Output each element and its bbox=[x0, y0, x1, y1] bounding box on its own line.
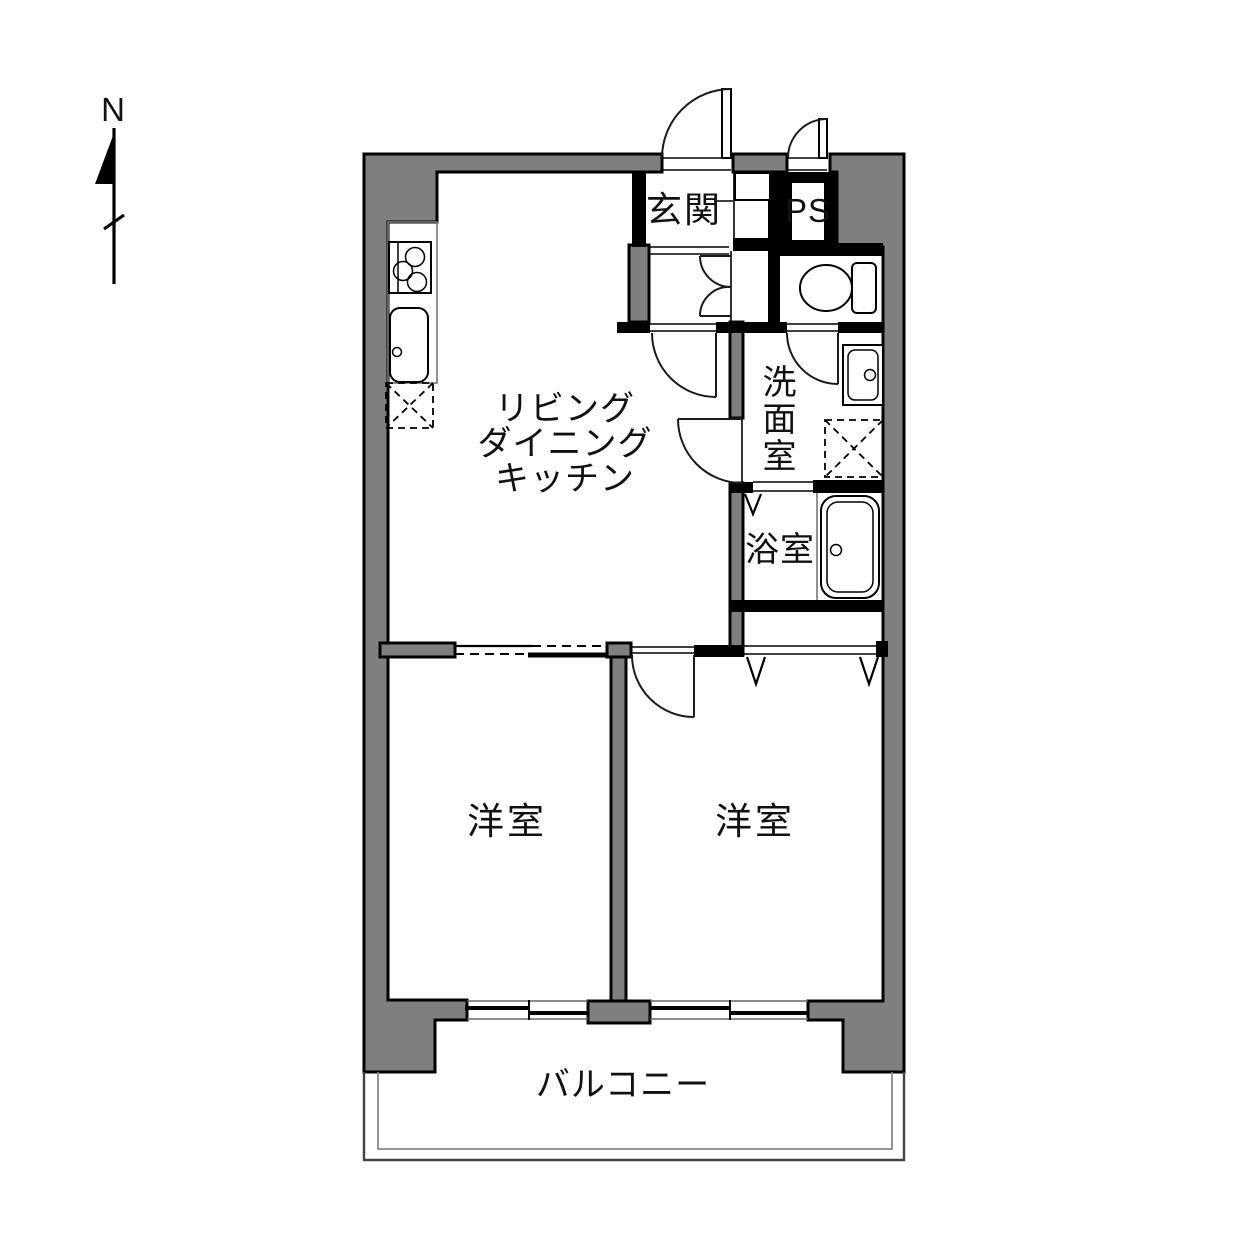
bedroom-right-door-frame bbox=[631, 647, 694, 653]
bathtub-icon bbox=[821, 496, 879, 598]
washroom-label-char1: 洗 bbox=[763, 364, 798, 402]
bedroom-right-door-swing bbox=[632, 655, 694, 717]
bedroom-left-label: 洋室 bbox=[467, 801, 547, 842]
floor-plan-drawing: N 玄関 PS リビング ダイニング キッチン 洗 面 室 浴室 洋室 洋室 バ… bbox=[0, 0, 1252, 1252]
bedroom-right-window bbox=[650, 1000, 808, 1020]
front-door-swing bbox=[662, 89, 731, 158]
closet-door-swing-top bbox=[700, 256, 731, 287]
front-door-leaf bbox=[722, 89, 731, 158]
washroom-label-char3: 室 bbox=[763, 438, 798, 476]
hall-door-swing bbox=[652, 333, 716, 397]
ps-door-frame bbox=[788, 158, 827, 170]
wall-genkan-left bbox=[632, 172, 646, 247]
ps-label: PS bbox=[785, 192, 831, 229]
bathroom-folding-door-mark bbox=[745, 494, 761, 514]
wall-hall-lower bbox=[629, 245, 649, 322]
toilet-door-frame bbox=[787, 324, 838, 331]
window-mark-left bbox=[747, 657, 765, 684]
ldk-label-line3: キッチン bbox=[495, 460, 635, 498]
wall-closet-top bbox=[733, 238, 773, 251]
window-mark-right bbox=[860, 657, 878, 684]
sliding-partition bbox=[455, 646, 607, 655]
genkan-step-lines bbox=[649, 247, 729, 254]
washroom-door-swing bbox=[678, 419, 742, 483]
wall-top-center-segment bbox=[733, 154, 787, 172]
wall-washroom-lower bbox=[730, 483, 743, 655]
ldk-label-line2: ダイニング bbox=[478, 425, 653, 463]
wall-washroom-upper bbox=[730, 322, 743, 418]
balcony-label: バルコニー bbox=[536, 1066, 710, 1104]
wall-bathroom-bottom bbox=[730, 600, 883, 612]
kitchen-sink-icon bbox=[390, 308, 428, 382]
wall-balcony-center-block bbox=[588, 1001, 650, 1023]
floor-plan-page: N 玄関 PS リビング ダイニング キッチン 洗 面 室 浴室 洋室 洋室 バ… bbox=[0, 0, 1252, 1252]
compass-north-label: N bbox=[101, 91, 125, 128]
shoe-cabinet-icon bbox=[735, 173, 770, 200]
wall-window-end-block bbox=[876, 641, 888, 657]
wall-band-left-foot bbox=[617, 322, 650, 333]
wall-toilet-top bbox=[768, 243, 883, 256]
bedroom-right-label: 洋室 bbox=[715, 801, 795, 842]
ps-door-leaf bbox=[819, 119, 827, 158]
washroom-label-char2: 面 bbox=[763, 401, 798, 439]
wall-band-center bbox=[716, 322, 787, 333]
toilet-icon bbox=[800, 263, 876, 313]
closet-door-swing-bottom bbox=[700, 287, 731, 316]
wall-between-bedrooms bbox=[611, 657, 626, 1001]
bedroom-left-window bbox=[465, 1000, 588, 1020]
bedroom-right-window-band bbox=[742, 646, 877, 654]
bathroom-door-frame bbox=[753, 482, 813, 491]
wall-washroom-bottom bbox=[813, 480, 883, 493]
compass-north-arrow: N bbox=[95, 91, 125, 284]
bathroom-label: 浴室 bbox=[745, 531, 815, 569]
wall-band-right bbox=[838, 322, 883, 333]
refrigerator-placeholder-icon bbox=[386, 383, 433, 428]
stove-icon bbox=[389, 242, 431, 293]
ldk-label-line1: リビング bbox=[495, 390, 635, 428]
hall-door-frame bbox=[650, 324, 716, 331]
wall-bedroom-pillar bbox=[607, 643, 631, 657]
wall-toilet-left bbox=[768, 243, 780, 333]
genkan-label: 玄関 bbox=[646, 189, 722, 230]
washing-machine-placeholder-icon bbox=[825, 420, 883, 477]
washbasin-icon bbox=[843, 345, 883, 405]
wall-bedroom-right-top bbox=[694, 645, 744, 657]
wall-ldk-bedroom-left bbox=[380, 643, 455, 657]
front-door-frame bbox=[662, 158, 731, 170]
